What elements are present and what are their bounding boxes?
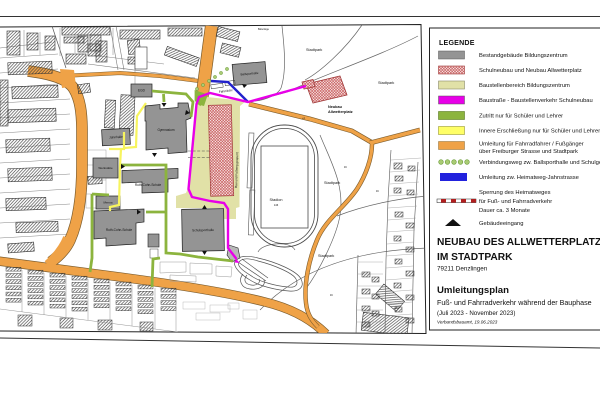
svg-text:IM STADTPARK: IM STADTPARK (437, 252, 513, 263)
svg-text:Stadtpark: Stadtpark (378, 81, 394, 85)
svg-text:Schulsporthalle: Schulsporthalle (192, 228, 214, 232)
svg-text:Verbindungsweg zw. Ballsportha: Verbindungsweg zw. Ballsporthalle und Sc… (479, 160, 600, 166)
svg-text:Bärenloge: Bärenloge (258, 28, 270, 31)
svg-text:Umleitung zw. Heimatweg-Jahnst: Umleitung zw. Heimatweg-Jahnstrasse (479, 175, 579, 181)
svg-text:79211 Denzlingen: 79211 Denzlingen (437, 266, 488, 273)
svg-text:Allwetterplatz: Allwetterplatz (328, 110, 353, 114)
svg-text:Baustellenbereich Bildungszent: Baustellenbereich Bildungszentrum (479, 83, 570, 89)
svg-text:Innere Erschließung nur für Sc: Innere Erschließung nur für Schüler und … (479, 129, 600, 135)
svg-text:Bestandgebäude Bildungszentrum: Bestandgebäude Bildungszentrum (479, 53, 568, 59)
svg-text:für Fuß- und Fahrradverkehr: für Fuß- und Fahrradverkehr (479, 199, 552, 205)
svg-text:Sperrung des Heimatweges: Sperrung des Heimatweges (479, 190, 551, 196)
svg-text:EGD: EGD (138, 89, 146, 93)
svg-text:Umleitungsplan: Umleitungsplan (437, 285, 509, 296)
svg-text:(Juli 2023 - November 2023): (Juli 2023 - November 2023) (437, 310, 515, 317)
svg-text:Gymnasium: Gymnasium (157, 128, 174, 132)
svg-text:über Freiburger Strasse und St: über Freiburger Strasse und Stadtpark (479, 149, 578, 155)
svg-text:Fuß- und Fahrradverkehr währen: Fuß- und Fahrradverkehr während der Baup… (437, 299, 592, 307)
svg-text:Baustraße - Baustellenverkehr: Baustraße - Baustellenverkehr Schulneuba… (479, 98, 593, 104)
svg-text:NEUBAU DES ALLWETTERPLATZES: NEUBAU DES ALLWETTERPLATZES (437, 237, 600, 248)
svg-text:Schulneubau und Neubau Allwett: Schulneubau und Neubau Allwetterplatz (479, 68, 582, 74)
svg-text:Ruth-Cohn-Schule: Ruth-Cohn-Schule (135, 183, 161, 187)
svg-text:Mensa: Mensa (103, 201, 112, 205)
svg-text:Stadtpark: Stadtpark (324, 181, 340, 185)
svg-text:LEGENDE: LEGENDE (439, 39, 475, 47)
svg-text:Stadtpark: Stadtpark (318, 254, 334, 258)
svg-text:Ruth-Cohn-Schule: Ruth-Cohn-Schule (106, 228, 132, 232)
svg-text:Werkstätte: Werkstätte (98, 166, 113, 170)
svg-text:Jahnhalle: Jahnhalle (109, 135, 123, 140)
svg-text:Zutritt nur für Schüler und Le: Zutritt nur für Schüler und Lehrer (479, 114, 563, 120)
svg-text:Gebäudeeingang: Gebäudeeingang (479, 221, 523, 227)
svg-text:Dauer ca. 3 Monate: Dauer ca. 3 Monate (479, 208, 530, 214)
svg-text:Neubau: Neubau (328, 105, 343, 109)
svg-text:Stadtpark: Stadtpark (306, 48, 322, 52)
svg-text:146: 146 (274, 203, 279, 207)
svg-text:Stadion: Stadion (270, 198, 283, 202)
svg-text:Verbandsbauamt, 19.06.2023: Verbandsbauamt, 19.06.2023 (437, 320, 498, 325)
svg-text:Umleitung für Fahrradfahrer /: Umleitung für Fahrradfahrer / Fußgänger (479, 142, 584, 148)
